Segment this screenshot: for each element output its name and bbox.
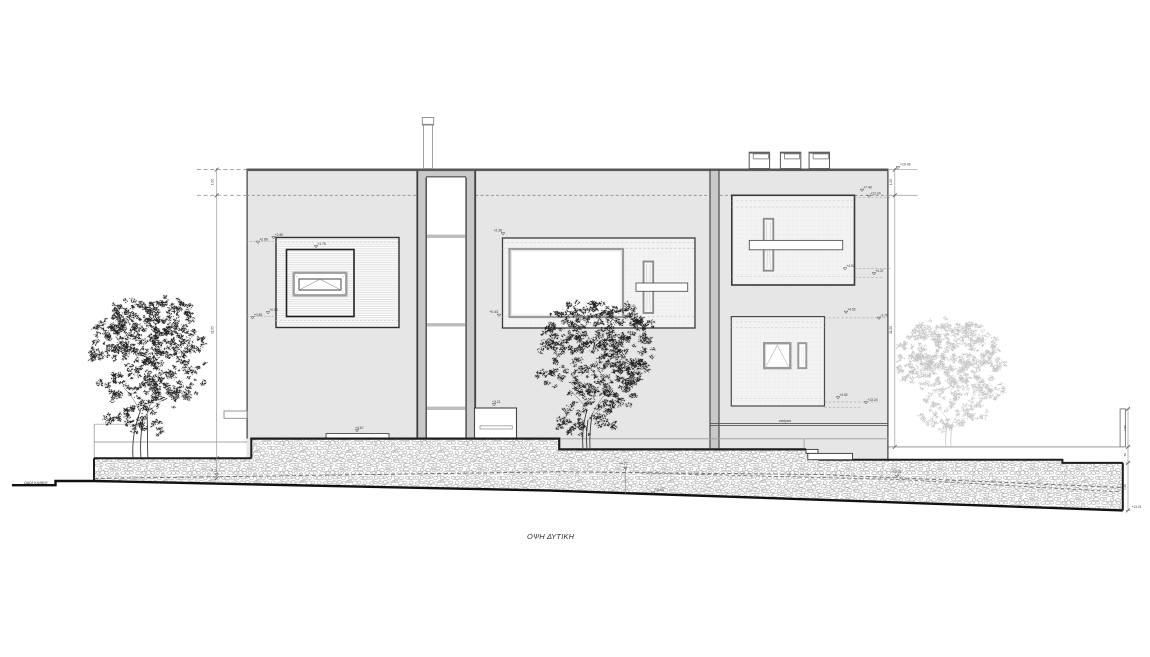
- svg-text:1.00: 1.00: [211, 179, 215, 185]
- svg-text:+7.40: +7.40: [863, 186, 872, 190]
- svg-text:+10.43: +10.43: [900, 163, 911, 167]
- svg-text:+1.76: +1.76: [317, 242, 326, 246]
- svg-text:+13.05: +13.05: [891, 470, 902, 474]
- svg-text:11.00: 11.00: [889, 326, 893, 334]
- svg-text:1.00: 1.00: [1123, 484, 1127, 490]
- svg-text:+4.37: +4.37: [875, 269, 884, 273]
- svg-text:+3.21: +3.21: [492, 400, 501, 404]
- svg-text:+13.24: +13.24: [1132, 505, 1142, 509]
- svg-text:+4.52: +4.52: [839, 393, 848, 397]
- svg-text:+2.36: +2.36: [493, 229, 502, 233]
- svg-text:+4.52: +4.52: [846, 264, 855, 268]
- svg-text:+13.24: +13.24: [867, 398, 878, 402]
- svg-text:1.50: 1.50: [1123, 425, 1127, 431]
- svg-text:υπόγειο: υπόγειο: [779, 419, 792, 423]
- svg-text:11.05: 11.05: [211, 326, 215, 334]
- svg-text:+0.56: +0.56: [254, 313, 263, 317]
- svg-text:ΟΨΗ ΔΥΤΙΚΗ: ΟΨΗ ΔΥΤΙΚΗ: [527, 532, 575, 541]
- svg-text:+0.58: +0.58: [269, 308, 278, 312]
- svg-text:+0.43: +0.43: [489, 310, 498, 314]
- svg-text:+12.24: +12.24: [870, 192, 881, 196]
- svg-text:ΟΔΟΣ ΚΑΛΒΟΥ: ΟΔΟΣ ΚΑΛΒΟΥ: [24, 481, 49, 485]
- svg-text:+4.02: +4.02: [619, 462, 628, 466]
- svg-text:+2.80: +2.80: [275, 233, 284, 237]
- svg-text:1.00: 1.00: [889, 179, 893, 185]
- svg-text:-3.70: -3.70: [880, 314, 888, 318]
- svg-text:+4.67: +4.67: [355, 426, 364, 430]
- svg-text:+2.66: +2.66: [259, 238, 268, 242]
- svg-text:+2.40: +2.40: [655, 488, 664, 492]
- svg-text:+4.52: +4.52: [847, 308, 856, 312]
- svg-text:.50: .50: [1123, 453, 1127, 458]
